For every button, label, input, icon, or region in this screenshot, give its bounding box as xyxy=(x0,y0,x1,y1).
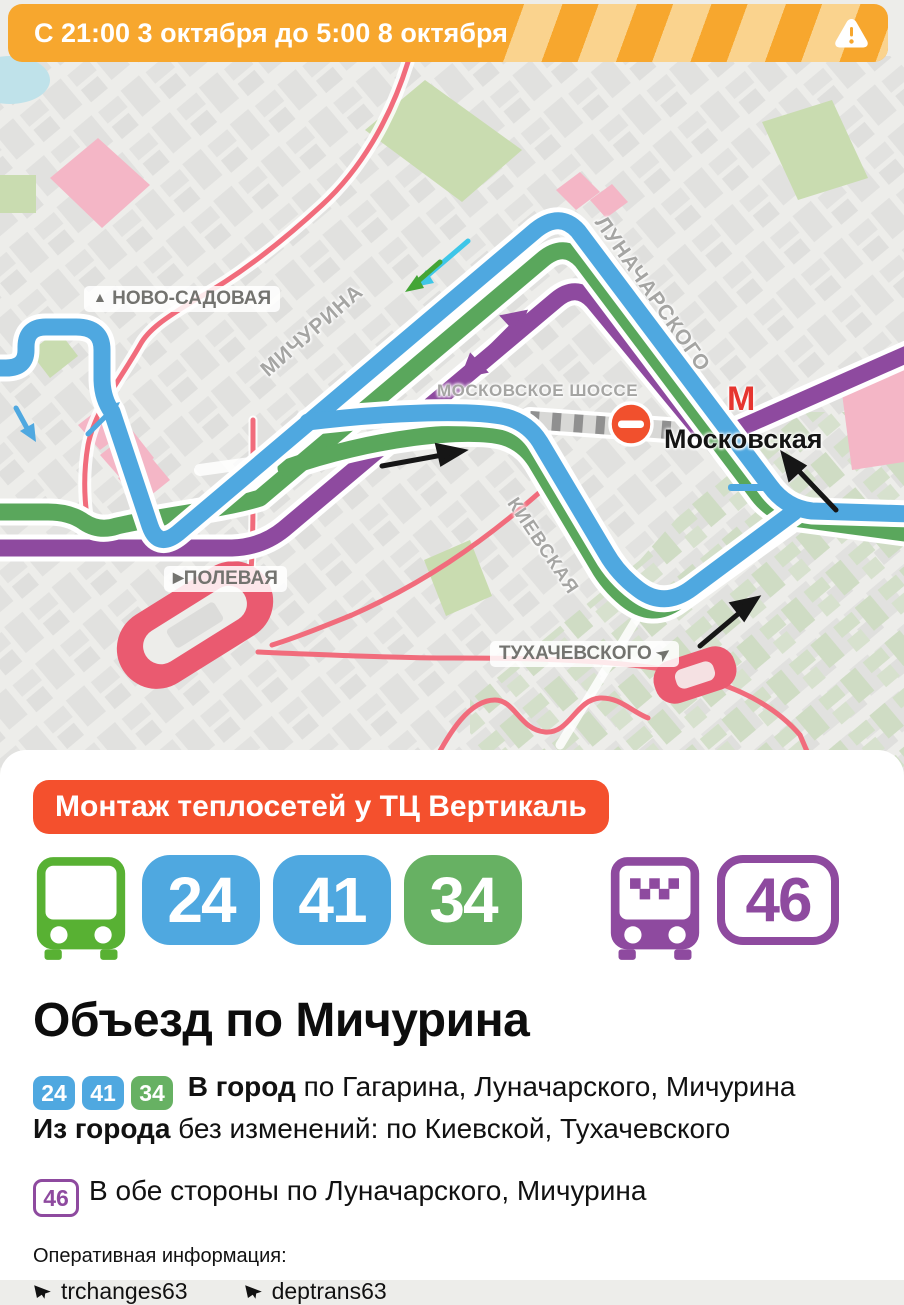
channel-deptrans63[interactable]: deptrans63 xyxy=(244,1278,387,1305)
bus-icon xyxy=(33,855,129,963)
metro-underline xyxy=(728,484,778,491)
channel-name[interactable]: deptrans63 xyxy=(272,1278,387,1305)
warning-triangle-icon xyxy=(833,17,870,50)
direction-into-city: В город xyxy=(188,1071,296,1102)
metro-icon: М xyxy=(727,380,755,419)
alert-banner: С 21:00 3 октября до 5:00 8 октября xyxy=(8,4,888,62)
transit-notice-image: ▲ НОВО-САДОВАЯ МИЧУРИНА МОСКОВСКОЕ ШОССЕ… xyxy=(0,0,904,1280)
closed-road-section xyxy=(530,420,682,431)
info-card: Монтаж теплосетей у ТЦ Вертикаль 24 41 3… xyxy=(0,750,904,1280)
footer-label: Оперативная информация: xyxy=(33,1245,874,1268)
telegram-plane-icon xyxy=(244,1284,263,1300)
street-label-moskovskoe-shosse: МОСКОВСКОЕ ШОССЕ xyxy=(437,381,638,401)
telegram-channels: trchanges63 deptrans63 xyxy=(33,1278,874,1305)
route-46-text: В обе стороны по Луначарского, Мичурина xyxy=(89,1175,646,1206)
direction-out-of-city: Из города xyxy=(33,1113,170,1144)
direction-triangle-icon: ▶ xyxy=(173,569,184,585)
route-badge-24: 24 xyxy=(142,855,260,945)
route-badge-46: 46 xyxy=(717,855,839,945)
reason-badge: Монтаж теплосетей у ТЦ Вертикаль xyxy=(33,780,609,834)
mini-badge-34: 34 xyxy=(131,1076,173,1110)
mini-badge-41: 41 xyxy=(82,1076,124,1110)
channel-name[interactable]: trchanges63 xyxy=(61,1278,188,1305)
mini-badge-24: 24 xyxy=(33,1076,75,1110)
telegram-plane-icon xyxy=(33,1284,52,1300)
into-city-streets: по Гагарина, Луначарского, Мичурина xyxy=(296,1071,796,1102)
page-title: Объезд по Мичурина xyxy=(33,993,874,1048)
channel-trchanges63[interactable]: trchanges63 xyxy=(33,1278,188,1305)
paragraph-route-46: 46В обе стороны по Луначарского, Мичурин… xyxy=(33,1172,874,1217)
mini-badge-46: 46 xyxy=(33,1179,79,1217)
street-label-tukhachevskogo: ТУХАЧЕВСКОГО ➤ xyxy=(490,641,679,667)
route-badge-41: 41 xyxy=(273,855,391,945)
direction-triangle-icon: ▲ xyxy=(93,289,107,305)
shuttle-bus-icon xyxy=(607,855,703,963)
metro-station-label: Московская xyxy=(664,424,823,455)
out-of-city-streets: без изменений: по Киевской, Тухачевского xyxy=(170,1113,730,1144)
direction-arrow-icon: ➤ xyxy=(653,642,675,666)
paragraph-changed-routes: 244134 В город по Гагарина, Луначарского… xyxy=(33,1068,874,1148)
no-entry-icon xyxy=(610,403,652,445)
banner-dates: С 21:00 3 октября до 5:00 8 октября xyxy=(34,4,508,62)
street-label-polevaya: ▶ПОЛЕВАЯ xyxy=(164,566,287,592)
street-label-novo-sadovaya: ▲ НОВО-САДОВАЯ xyxy=(84,286,280,312)
banner-stripes xyxy=(488,4,888,62)
route-icons-row: 24 41 34 46 xyxy=(33,855,874,963)
route-badge-34: 34 xyxy=(404,855,522,945)
